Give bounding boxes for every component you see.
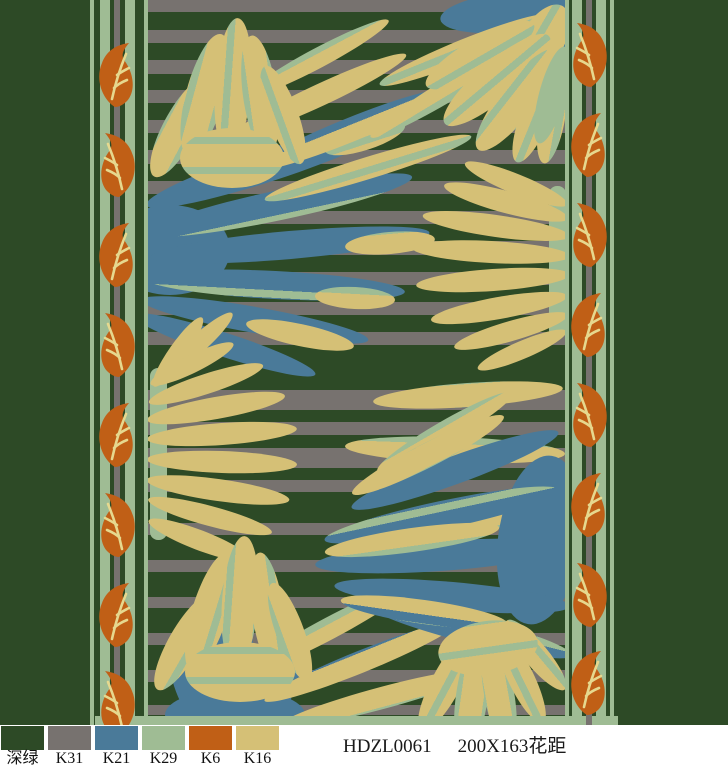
color-label: 深绿: [6, 750, 38, 768]
color-label: K21: [103, 750, 131, 768]
palette-item: K29: [142, 726, 185, 768]
color-label: K29: [150, 750, 178, 768]
palette-item: K6: [189, 726, 232, 768]
footer-bar: 深绿 K31 K21 K29 K6 K16 HDZL0061200X163花距: [0, 725, 728, 768]
color-swatch-k16: [236, 726, 279, 750]
color-label: K16: [244, 750, 272, 768]
palette-item: K31: [48, 726, 91, 768]
palette-item: K21: [95, 726, 138, 768]
design-code-number: HDZL0061: [343, 736, 432, 757]
color-swatch-k31: [48, 726, 91, 750]
color-swatch-k29: [142, 726, 185, 750]
carpet-pattern-preview: [0, 0, 728, 725]
color-label: K6: [201, 750, 221, 768]
design-code: HDZL0061200X163花距: [343, 731, 566, 758]
carpet-design-sheet: 深绿 K31 K21 K29 K6 K16 HDZL0061200X163花距: [0, 0, 728, 768]
palette-item: K16: [236, 726, 279, 768]
palette-bar: 深绿 K31 K21 K29 K6 K16: [1, 726, 283, 768]
color-swatch-k6: [189, 726, 232, 750]
design-repeat-spec: 200X163花距: [458, 736, 567, 757]
color-swatch-dark-green: [1, 726, 44, 750]
color-label: K31: [56, 750, 84, 768]
color-swatch-k21: [95, 726, 138, 750]
palette-item: 深绿: [1, 726, 44, 768]
bottom-sage-band: [95, 716, 618, 725]
